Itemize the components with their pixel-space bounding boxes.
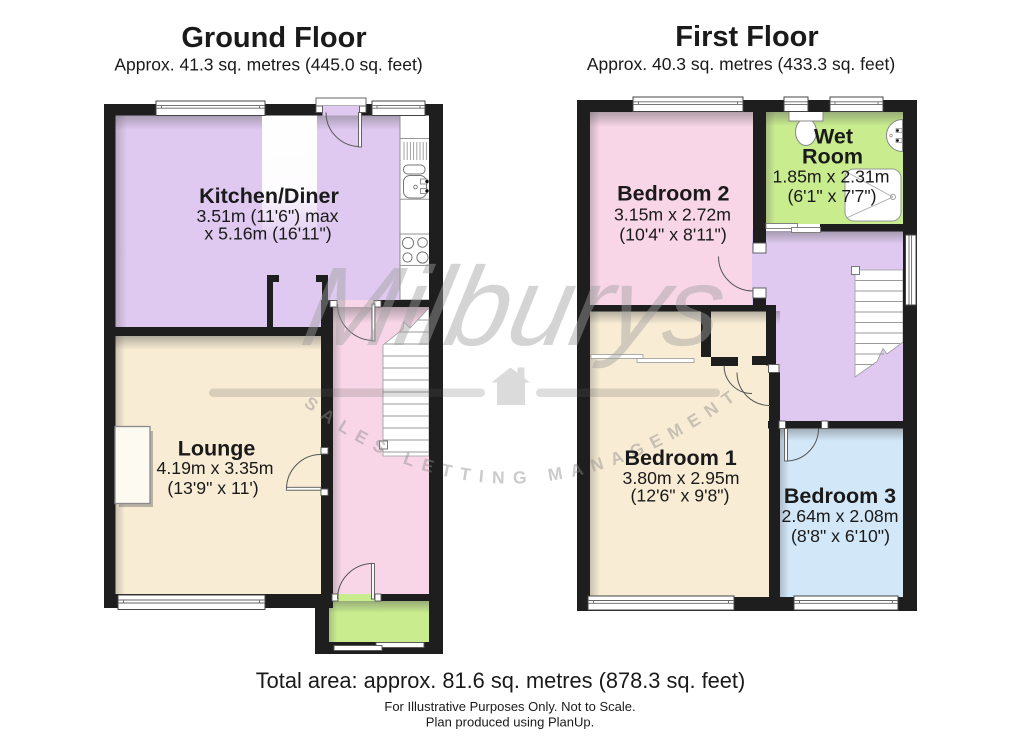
svg-text:(12'6" x 9'8"): (12'6" x 9'8") xyxy=(631,486,730,506)
svg-text:3.15m x 2.72m: 3.15m x 2.72m xyxy=(614,205,731,225)
svg-text:(13'9" x 11'): (13'9" x 11') xyxy=(167,478,258,498)
svg-text:Bedroom 1: Bedroom 1 xyxy=(624,446,736,470)
svg-text:2.64m x 2.08m: 2.64m x 2.08m xyxy=(782,506,899,526)
svg-text:Total area: approx. 81.6 sq. m: Total area: approx. 81.6 sq. metres (878… xyxy=(256,668,745,693)
svg-text:(6'1" x 7'7"): (6'1" x 7'7") xyxy=(787,186,876,206)
svg-text:For Illustrative Purposes Only: For Illustrative Purposes Only. Not to S… xyxy=(384,699,635,714)
svg-text:Plan produced using PlanUp.: Plan produced using PlanUp. xyxy=(426,715,594,730)
svg-text:x 5.16m (16'11"): x 5.16m (16'11") xyxy=(204,224,331,244)
svg-text:Ground Floor: Ground Floor xyxy=(181,22,366,54)
svg-text:1.85m x 2.31m: 1.85m x 2.31m xyxy=(773,167,890,187)
svg-text:4.19m x 3.35m: 4.19m x 3.35m xyxy=(157,458,274,478)
svg-text:Lounge: Lounge xyxy=(178,437,256,461)
svg-text:Approx. 41.3 sq. metres (445.0: Approx. 41.3 sq. metres (445.0 sq. feet) xyxy=(114,55,422,75)
svg-text:Approx. 40.3 sq. metres (433.3: Approx. 40.3 sq. metres (433.3 sq. feet) xyxy=(587,54,895,74)
svg-text:First Floor: First Floor xyxy=(675,21,818,53)
svg-text:Milburys: Milburys xyxy=(293,243,737,369)
svg-text:(10'4" x 8'11"): (10'4" x 8'11") xyxy=(619,225,726,245)
svg-text:Bedroom 2: Bedroom 2 xyxy=(617,182,729,206)
svg-text:Kitchen/Diner: Kitchen/Diner xyxy=(199,184,339,208)
svg-text:Room: Room xyxy=(802,145,863,169)
svg-text:(8'8" x 6'10"): (8'8" x 6'10") xyxy=(791,526,890,546)
svg-text:Bedroom 3: Bedroom 3 xyxy=(784,484,896,508)
